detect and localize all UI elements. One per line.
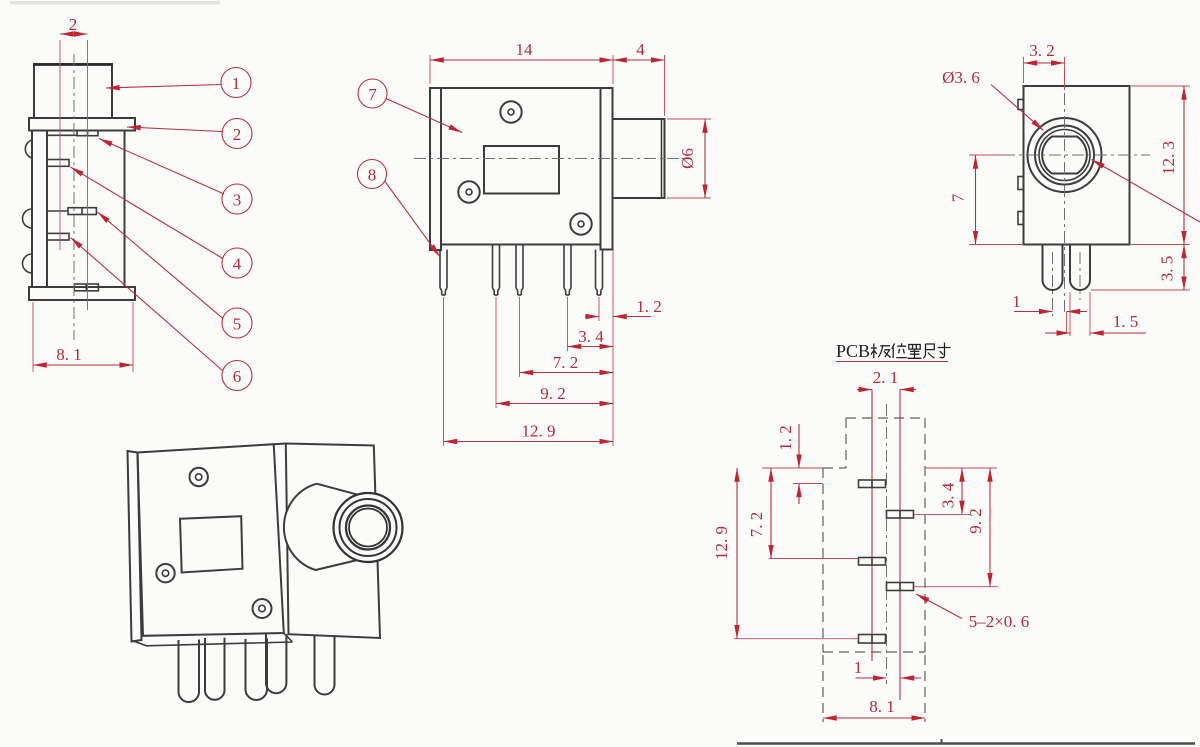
svg-text:2: 2: [69, 15, 78, 34]
svg-text:12. 9: 12. 9: [522, 422, 556, 441]
svg-text:1: 1: [1012, 292, 1021, 311]
svg-text:7: 7: [949, 193, 968, 202]
svg-text:5–2×0. 6: 5–2×0. 6: [969, 612, 1030, 631]
svg-text:6: 6: [233, 367, 242, 386]
svg-text:Ø3. 6: Ø3. 6: [942, 68, 980, 87]
svg-text:12. 3: 12. 3: [1159, 141, 1178, 175]
svg-text:8. 1: 8. 1: [56, 345, 82, 364]
svg-text:12. 9: 12. 9: [712, 526, 731, 560]
svg-text:Ø6: Ø6: [678, 148, 697, 169]
svg-text:8. 1: 8. 1: [869, 697, 895, 716]
svg-text:1. 2: 1. 2: [636, 297, 662, 316]
svg-text:8: 8: [368, 166, 377, 185]
svg-text:7. 2: 7. 2: [553, 353, 579, 372]
svg-text:1: 1: [854, 658, 863, 677]
svg-text:9. 2: 9. 2: [966, 508, 985, 534]
svg-text:PCB: PCB: [836, 341, 870, 361]
svg-text:7: 7: [368, 85, 377, 104]
svg-text:14: 14: [516, 40, 534, 59]
svg-text:5: 5: [233, 315, 242, 334]
svg-text:1: 1: [232, 74, 241, 93]
svg-text:3. 4: 3. 4: [578, 327, 604, 346]
svg-text:7. 2: 7. 2: [747, 512, 766, 538]
svg-text:3. 2: 3. 2: [1029, 41, 1055, 60]
svg-text:2. 1: 2. 1: [873, 368, 899, 387]
svg-text:3. 5: 3. 5: [1158, 256, 1177, 282]
svg-text:4: 4: [636, 40, 645, 59]
svg-text:1. 2: 1. 2: [776, 425, 795, 451]
svg-text:1. 5: 1. 5: [1113, 312, 1139, 331]
svg-text:3. 4: 3. 4: [939, 482, 958, 508]
svg-text:2: 2: [233, 125, 242, 144]
svg-text:3: 3: [233, 191, 242, 210]
svg-text:9. 2: 9. 2: [540, 384, 566, 403]
svg-text:4: 4: [233, 255, 242, 274]
